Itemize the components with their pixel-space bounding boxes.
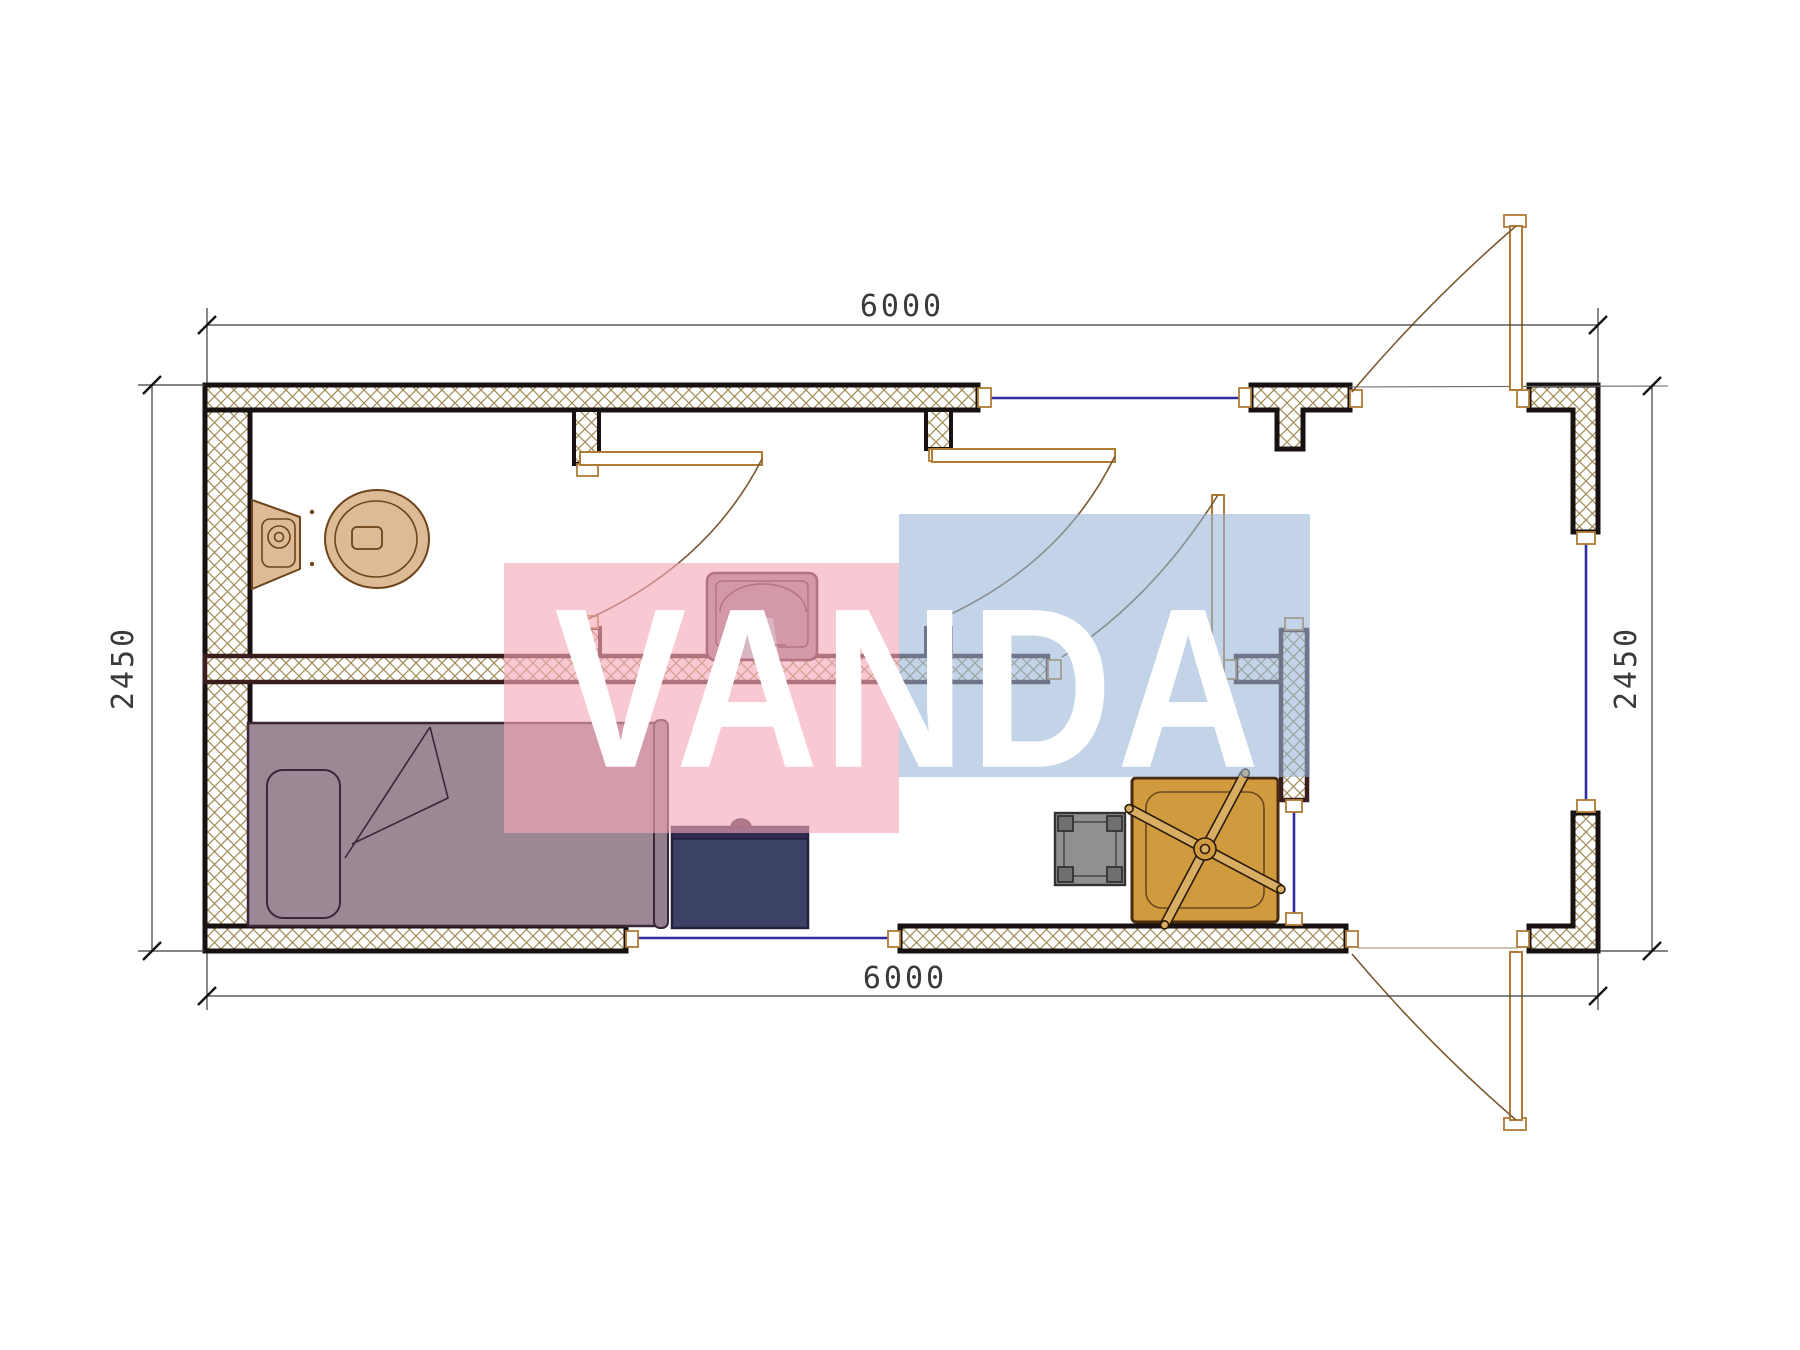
back-door-arc [1352,954,1516,1120]
top-wall [205,385,978,410]
bottom-right-corner-wall [1529,813,1598,951]
entry-threshold-top [1349,386,1668,387]
back-door-leaf [1510,952,1522,1120]
toilet [252,490,429,589]
toilet-bowl [325,490,429,588]
bed-pillow [267,770,340,918]
watermark-text: VANDA [554,557,1263,818]
bottom-wall-right [900,926,1346,951]
toilet-tank [252,500,300,589]
dim-right-label: 2450 [1609,626,1644,710]
hall-door-jamb-top [926,410,951,449]
entrance-door-leaf [1510,226,1522,390]
desk-body [672,827,808,928]
entrance-door-arc [1352,226,1516,392]
desk [672,819,808,928]
top-right-corner-wall [1529,385,1598,532]
top-t-column [1251,385,1350,449]
dim-left-label: 2450 [106,626,141,710]
stool [1055,813,1125,885]
bottom-wall-left [205,926,626,951]
wc-door-leaf [580,452,762,465]
dim-bottom-label: 6000 [863,961,947,996]
hall-door-leaf [932,449,1115,462]
dim-top-label: 6000 [860,289,944,324]
floor-plan-canvas: 6000 6000 2450 2450 VANDA [0,0,1800,1350]
